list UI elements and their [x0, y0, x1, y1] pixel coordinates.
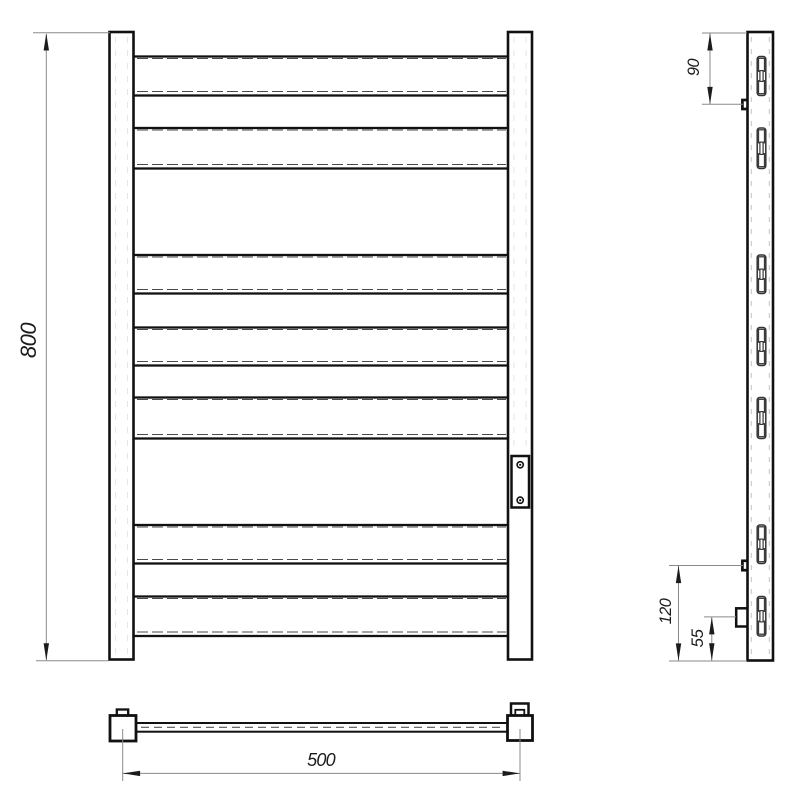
- svg-text:90: 90: [685, 59, 703, 77]
- svg-text:800: 800: [16, 322, 41, 358]
- svg-text:500: 500: [307, 750, 335, 770]
- svg-text:55: 55: [688, 629, 707, 648]
- svg-text:120: 120: [657, 598, 675, 624]
